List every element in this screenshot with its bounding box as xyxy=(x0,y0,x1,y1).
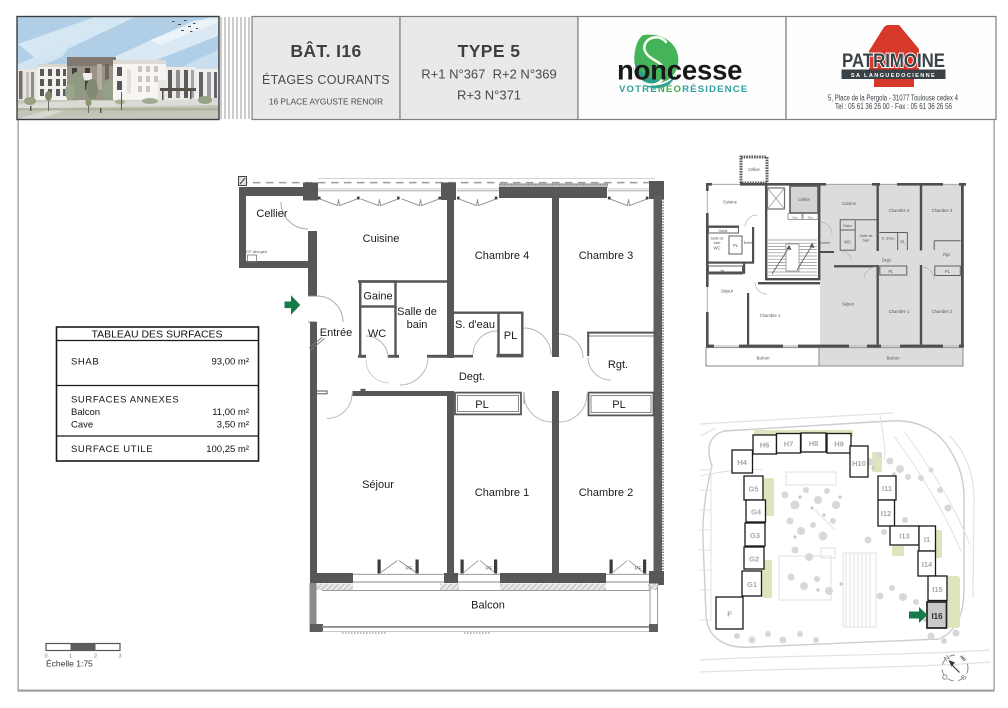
svg-text:Chambre 1: Chambre 1 xyxy=(889,309,910,314)
svg-text:Balcon: Balcon xyxy=(471,600,505,612)
svg-text:Chambre 4: Chambre 4 xyxy=(475,250,529,262)
svg-text:Cuisine: Cuisine xyxy=(363,233,400,245)
svg-text:Balcon: Balcon xyxy=(71,407,100,418)
svg-text:PL: PL xyxy=(504,330,517,342)
svg-text:R+3 N°371: R+3 N°371 xyxy=(457,88,521,103)
svg-text:Chambre 3: Chambre 3 xyxy=(932,208,953,213)
svg-text:WC: WC xyxy=(368,328,386,340)
svg-text:Rgt.: Rgt. xyxy=(943,252,951,257)
svg-text:Séjour: Séjour xyxy=(721,289,734,294)
svg-text:Entrée: Entrée xyxy=(744,241,755,245)
svg-text:Chambre 2: Chambre 2 xyxy=(579,487,633,499)
svg-text:SHAB: SHAB xyxy=(71,357,99,368)
svg-text:Elec: Elec xyxy=(808,215,814,219)
svg-text:G4: G4 xyxy=(751,508,762,517)
svg-text:Cuisine: Cuisine xyxy=(842,201,857,206)
svg-text:bain: bain xyxy=(407,319,428,331)
svg-text:I14: I14 xyxy=(922,560,933,569)
svg-text:Salle de: Salle de xyxy=(860,234,873,238)
svg-text:CF dérogée: CF dérogée xyxy=(246,249,268,254)
svg-text:R+1 N°367 R+2 N°369: R+1 N°367 R+2 N°369 xyxy=(421,67,556,82)
svg-text:PF: PF xyxy=(406,566,412,572)
svg-text:H9: H9 xyxy=(834,440,844,449)
svg-text:Balcon: Balcon xyxy=(757,356,770,361)
svg-text:bain: bain xyxy=(714,241,721,245)
svg-text:3: 3 xyxy=(118,654,121,660)
svg-text:G5: G5 xyxy=(748,485,758,494)
svg-text:Cellier: Cellier xyxy=(748,167,760,172)
svg-text:Séjour: Séjour xyxy=(842,302,855,307)
svg-text:noncesse: noncesse xyxy=(617,55,742,86)
svg-text:Degt.: Degt. xyxy=(459,371,485,383)
svg-text:I12: I12 xyxy=(881,509,891,518)
svg-text:PL: PL xyxy=(475,399,488,411)
svg-text:PL: PL xyxy=(945,269,951,274)
svg-text:Degt.: Degt. xyxy=(882,258,892,263)
svg-text:WC: WC xyxy=(844,240,851,245)
svg-text:WC: WC xyxy=(714,246,721,251)
svg-text:Cellier: Cellier xyxy=(798,197,810,202)
svg-text:Gaine: Gaine xyxy=(843,224,852,228)
svg-text:SA LANGUEDOCIENNE: SA LANGUEDOCIENNE xyxy=(851,73,936,79)
svg-text:I1: I1 xyxy=(924,535,930,544)
svg-text:G2: G2 xyxy=(749,555,759,564)
svg-text:Chambre 2: Chambre 2 xyxy=(932,309,953,314)
svg-text:Salle de: Salle de xyxy=(397,306,437,318)
svg-text:I15: I15 xyxy=(932,585,942,594)
svg-text:SURFACES ANNEXES: SURFACES ANNEXES xyxy=(71,395,179,406)
svg-text:Séjour: Séjour xyxy=(362,479,394,491)
svg-text:Entrée: Entrée xyxy=(820,241,831,245)
svg-text:BÂT. I16: BÂT. I16 xyxy=(290,40,361,61)
svg-text:PF: PF xyxy=(486,566,492,572)
svg-text:I11: I11 xyxy=(882,484,892,493)
svg-text:G1: G1 xyxy=(747,580,757,589)
svg-text:Balcon: Balcon xyxy=(887,356,900,361)
svg-text:Cave: Cave xyxy=(71,420,93,431)
svg-text:Gaine: Gaine xyxy=(363,291,392,303)
svg-text:Cellier: Cellier xyxy=(256,208,288,220)
svg-text:S. d'eau: S. d'eau xyxy=(455,319,495,331)
svg-text:PL: PL xyxy=(720,269,726,274)
svg-text:H4: H4 xyxy=(737,458,747,467)
svg-text:Entrée: Entrée xyxy=(320,327,352,339)
svg-text:bain: bain xyxy=(863,239,870,243)
svg-text:F: F xyxy=(727,610,732,619)
svg-text:G3: G3 xyxy=(750,531,760,540)
svg-text:Chambre 1: Chambre 1 xyxy=(475,487,529,499)
svg-text:Chambre 1: Chambre 1 xyxy=(760,313,781,318)
svg-text:3,50 m²: 3,50 m² xyxy=(217,420,249,431)
svg-text:11,00 m²: 11,00 m² xyxy=(212,407,249,418)
svg-text:Tel : 05 61 36 26 00 - Fax : 0: Tel : 05 61 36 26 00 - Fax : 05 61 36 26… xyxy=(835,102,952,111)
svg-text:Gaine: Gaine xyxy=(718,229,727,233)
svg-text:Cuisine: Cuisine xyxy=(723,200,738,205)
svg-text:2: 2 xyxy=(94,654,97,660)
svg-text:TYPE 5: TYPE 5 xyxy=(458,41,521,61)
svg-text:PL: PL xyxy=(612,399,625,411)
svg-text:PL: PL xyxy=(888,269,894,274)
svg-text:H8: H8 xyxy=(809,439,819,448)
svg-text:Chambre 4: Chambre 4 xyxy=(889,208,910,213)
svg-text:VOTRENÉORÉSIDENCE: VOTRENÉORÉSIDENCE xyxy=(619,83,748,95)
svg-text:S. d'eau: S. d'eau xyxy=(881,237,894,241)
svg-text:16 PLACE AYGUSTE RENOIR: 16 PLACE AYGUSTE RENOIR xyxy=(269,97,383,107)
svg-text:I13: I13 xyxy=(899,532,909,541)
svg-text:TABLEAU DES SURFACES: TABLEAU DES SURFACES xyxy=(91,329,222,341)
svg-text:ÉTAGES COURANTS: ÉTAGES COURANTS xyxy=(262,72,390,87)
svg-text:100,25 m²: 100,25 m² xyxy=(206,444,249,455)
svg-text:Rgt.: Rgt. xyxy=(608,359,628,371)
svg-text:I16: I16 xyxy=(931,612,943,621)
svg-text:Échelle 1:75: Échelle 1:75 xyxy=(46,659,93,669)
svg-text:H10: H10 xyxy=(852,459,866,468)
svg-text:Chambre 3: Chambre 3 xyxy=(579,250,633,262)
svg-text:H7: H7 xyxy=(784,440,794,449)
svg-text:PF: PF xyxy=(635,566,641,572)
svg-text:Salle de: Salle de xyxy=(711,237,724,241)
svg-text:Gaz: Gaz xyxy=(792,215,798,219)
svg-text:93,00 m²: 93,00 m² xyxy=(212,357,250,368)
svg-text:H6: H6 xyxy=(760,441,770,450)
svg-text:PL: PL xyxy=(733,243,739,248)
svg-text:PL: PL xyxy=(900,240,906,245)
svg-text:SURFACE UTILE: SURFACE UTILE xyxy=(71,444,153,455)
svg-text:PATRIMOINE: PATRIMOINE xyxy=(842,50,945,72)
